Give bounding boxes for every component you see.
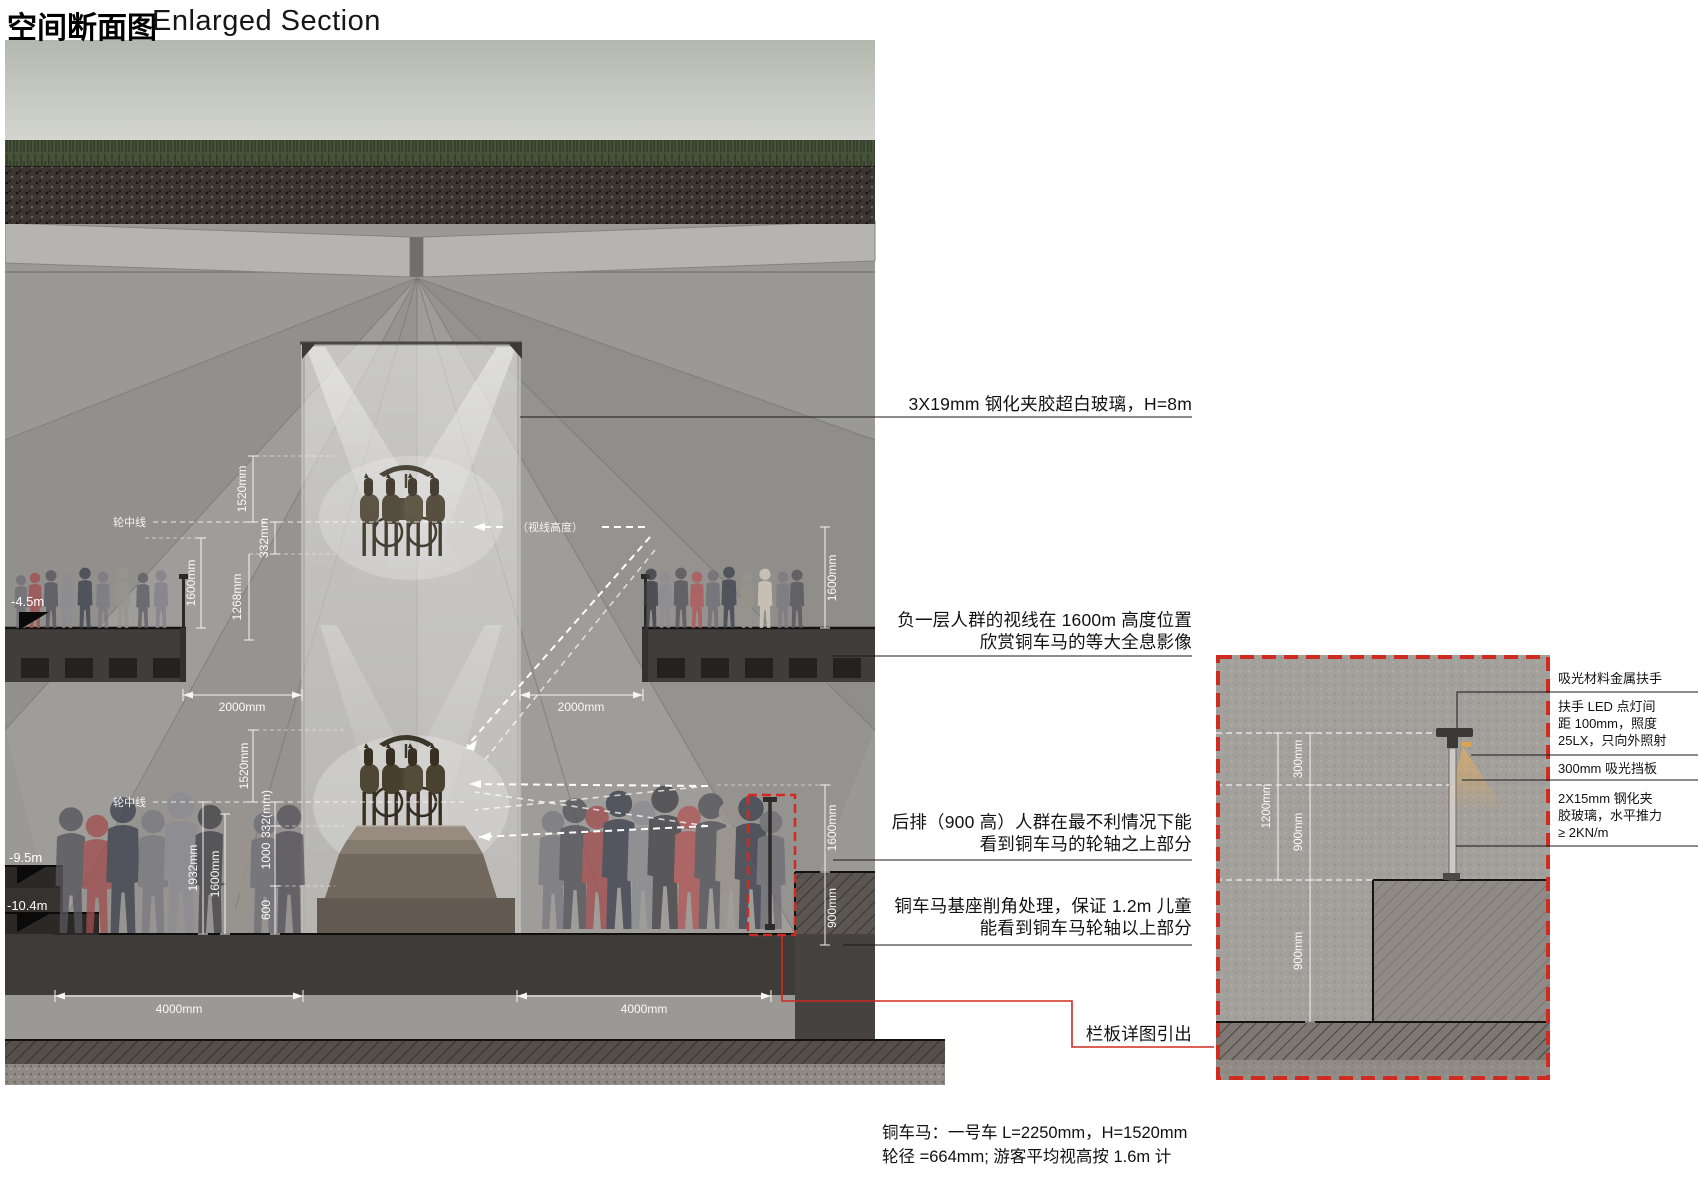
dim-label: 900mm — [1293, 932, 1305, 970]
note-led-line1: 扶手 LED 点灯间 — [1558, 699, 1699, 715]
page-title-zh: 空间断面图 — [7, 3, 157, 47]
upper-walkway-left — [5, 628, 186, 682]
callout-b1-sight-line1: 负一层人群的视线在 1600m 高度位置 — [760, 610, 1192, 631]
detail-bottom-slab — [1216, 1022, 1550, 1080]
dim-label: 332(mm) — [259, 790, 273, 838]
dim-label: 1600mm — [208, 851, 222, 898]
section-drawing-page: 空间断面图 Enlarged Section — [0, 0, 1700, 1179]
led-strip — [1462, 742, 1471, 747]
dim-label: 1000 — [259, 842, 273, 869]
callout-back-row-line2: 看到铜车马的轮轴之上部分 — [760, 834, 1192, 855]
note-glass-line3: ≥ 2KN/m — [1558, 825, 1699, 841]
callout-glass: 3X19mm 钢化夹胶超白玻璃，H=8m — [760, 394, 1192, 415]
dim-label: 1268mm — [230, 574, 244, 621]
wheel-centerline-label-lower: 轮中线 — [113, 795, 146, 809]
dim-label: 900mm — [1293, 813, 1305, 851]
detail-walkway-slab — [1373, 880, 1550, 1022]
railing-detail-drawing: 300mm 900mm 1200mm 900mm — [1216, 655, 1550, 1080]
dim-label: 332mm — [257, 518, 271, 558]
dim-label: 1932mm — [186, 845, 200, 892]
level-b1: -4.5m — [11, 594, 44, 609]
callout-b1-sight-line2: 欣赏铜车马的等大全息影像 — [760, 632, 1192, 653]
wheel-centerline-label-upper: 轮中线 — [113, 515, 146, 529]
dim-label: 1520mm — [237, 743, 251, 790]
page-title-en: Enlarged Section — [152, 5, 381, 38]
note-led-line3: 25LX，只向外照射 — [1558, 733, 1699, 749]
note-handrail: 吸光材料金属扶手 — [1558, 671, 1699, 687]
sky — [5, 40, 875, 140]
dim-label: 2000mm — [219, 700, 266, 714]
note-baffle: 300mm 吸光挡板 — [1558, 761, 1699, 777]
dim-label: 1520mm — [235, 466, 249, 513]
dim-label: 600 — [259, 900, 273, 920]
dim-label: 1600mm — [825, 555, 839, 602]
level-b2b: -10.4m — [7, 898, 47, 913]
bottom-strata — [5, 1040, 945, 1085]
note-glass-line2: 胶玻璃，水平推力 — [1558, 808, 1699, 824]
note-glass-line1: 2X15mm 钢化夹 — [1558, 791, 1699, 807]
sight-height-label: （视线高度） — [517, 520, 583, 534]
level-b2: -9.5m — [9, 850, 42, 865]
dim-label: 2000mm — [558, 700, 605, 714]
footnote-line2: 轮径 =664mm; 游客平均视高按 1.6m 计 — [882, 1143, 1171, 1167]
footnote-line1: 铜车马：一号车 L=2250mm，H=1520mm — [882, 1119, 1187, 1143]
callout-pedestal-line2: 能看到铜车马轮轴以上部分 — [760, 918, 1192, 939]
dim-label: 300mm — [1293, 740, 1305, 778]
ground-strata — [5, 40, 875, 224]
callout-back-row-line1: 后排（900 高）人群在最不利情况下能 — [760, 812, 1192, 833]
callout-pedestal-line1: 铜车马基座削角处理，保证 1.2m 儿童 — [760, 896, 1192, 917]
dim-label: 4000mm — [621, 1002, 668, 1016]
dim-label: 4000mm — [156, 1002, 203, 1016]
dim-label: 1200mm — [1261, 784, 1273, 829]
note-led-line2: 距 100mm，照度 — [1558, 716, 1699, 732]
dim-label: 1600mm — [184, 560, 198, 607]
callout-railing-detail-ref: 栏板详图引出 — [1000, 1024, 1192, 1045]
